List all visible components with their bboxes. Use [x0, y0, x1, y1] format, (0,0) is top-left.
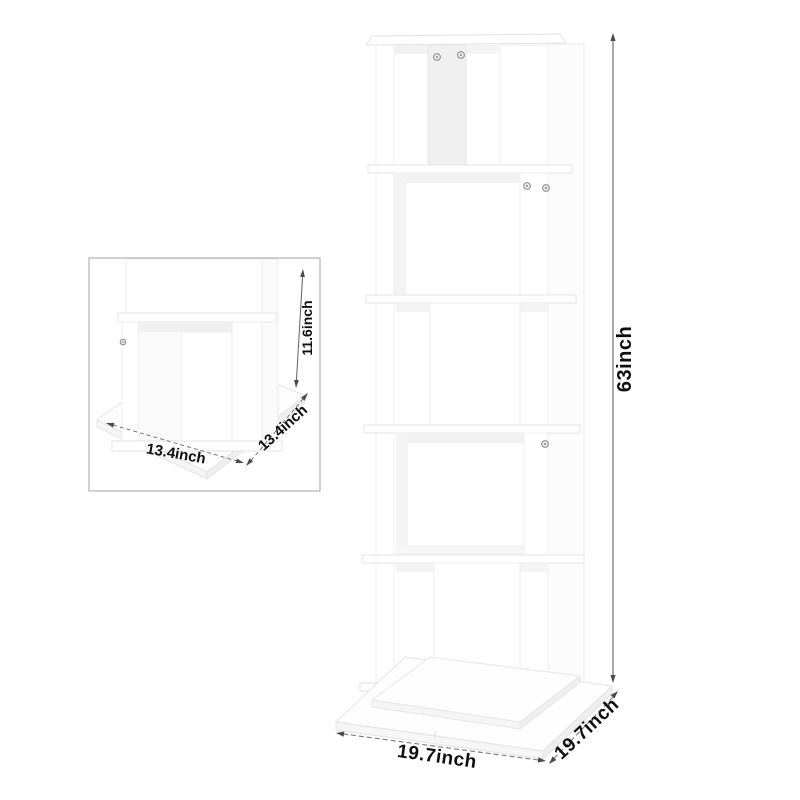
shelf-right-side-panel	[548, 44, 584, 686]
product-dimension-diagram: 63inch 19.7inch 19.7inch 11.6inch 13.4in…	[0, 0, 800, 800]
shelf-tier-4	[396, 433, 548, 555]
arrow-down-icon	[610, 675, 615, 683]
shelf-left-stile	[376, 45, 394, 683]
shelf-top-board	[366, 34, 566, 45]
shelf-board	[366, 295, 576, 303]
inset-shelf-corner	[112, 259, 282, 451]
shelf-tier-2	[394, 173, 549, 295]
shelf-tier-3	[396, 303, 548, 425]
shelf-board	[368, 165, 572, 173]
height-dimension-label: 63inch	[615, 326, 635, 392]
diagram-canvas	[0, 0, 800, 800]
shelf-board	[364, 425, 580, 433]
bookshelf-illustration	[336, 34, 612, 759]
arrow-left-icon	[336, 732, 344, 737]
arrow-up-icon	[610, 33, 615, 41]
shelf-tier-1	[394, 45, 548, 165]
inset-tier-height-label: 11.6inch	[300, 300, 314, 355]
shelf-board	[362, 555, 584, 563]
